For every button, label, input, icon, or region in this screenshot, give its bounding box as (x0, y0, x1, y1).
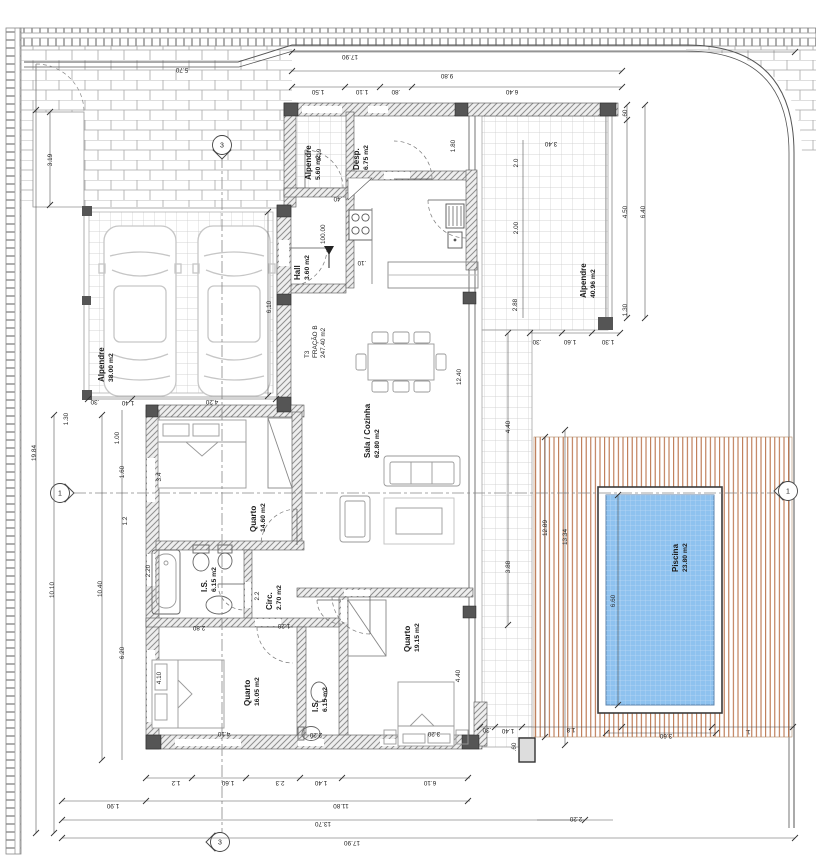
dimension-label: 1.8 (566, 726, 575, 733)
wardrobe (348, 600, 386, 656)
post (82, 206, 92, 216)
dimension-label: 1. (745, 728, 751, 735)
svg-text:I.S.: I.S. (200, 580, 209, 592)
svg-text:Piscina: Piscina (671, 543, 680, 572)
dimension-label: 4.10 (156, 671, 163, 684)
dimension-label: 17.90 (344, 839, 360, 846)
svg-text:40.96 m2: 40.96 m2 (590, 269, 597, 298)
car-icon (193, 226, 275, 396)
svg-text:14.60 m2: 14.60 m2 (260, 503, 267, 532)
pool-deck (519, 437, 792, 762)
floor-plan-svg: 1133 17.909.801.501.10.806.405.703.19.60… (0, 0, 816, 856)
dimension-label: 1.30 (601, 338, 614, 345)
shelf-triangle (348, 178, 372, 200)
svg-text:3: 3 (220, 143, 224, 150)
deck-equipment-box (519, 738, 535, 762)
dimension-label: .60 (511, 742, 518, 751)
svg-text:Sala / Cozinha: Sala / Cozinha (363, 403, 372, 458)
dimension-label: 1.40 (121, 399, 134, 406)
floor-plan-document: 1133 17.909.801.501.10.806.405.703.19.60… (0, 0, 816, 856)
dimension-label: 4.40 (455, 669, 462, 682)
side-path-tiles (482, 330, 532, 747)
svg-text:1: 1 (58, 491, 62, 498)
svg-text:247.40 m2: 247.40 m2 (320, 327, 327, 358)
terrace-post (598, 317, 613, 330)
svg-text:6.15 m2: 6.15 m2 (322, 687, 329, 712)
svg-text:5.60 m2: 5.60 m2 (315, 155, 322, 180)
room-label: Quarto14.60 m2 (249, 503, 267, 532)
dimension-label: 3.20 (427, 730, 440, 737)
dimension-label: 1.10 (355, 88, 368, 95)
coffee-table (396, 508, 442, 534)
room-label: Desp.6.75 m2 (352, 145, 370, 170)
dimension-label: 4.10 (217, 730, 230, 737)
dimension-label: .10 (357, 259, 366, 266)
dimension-label: 13.70 (315, 820, 331, 827)
room-label: Quarto19.15 m2 (403, 623, 421, 652)
svg-text:16.05 m2: 16.05 m2 (254, 677, 261, 706)
dimension-label: 3.4 (156, 472, 163, 481)
dimension-label: 6.40 (505, 88, 518, 95)
dimension-label: 1.60 (563, 338, 576, 345)
svg-text:23.80 m2: 23.80 m2 (682, 543, 689, 572)
dimension-label: 2.2 (254, 591, 261, 600)
post (82, 296, 91, 305)
dimension-label: 1.2 (171, 779, 180, 786)
svg-text:FRAÇÃO B: FRAÇÃO B (310, 325, 319, 358)
svg-text:Hall: Hall (293, 265, 302, 280)
bed (152, 660, 224, 728)
dimension-label: 2.0 (513, 158, 520, 167)
room-label: Quarto16.05 m2 (243, 677, 261, 706)
svg-text:1: 1 (786, 489, 790, 496)
rug (384, 498, 454, 544)
dimension-label: 5.70 (175, 66, 188, 73)
dimension-label: .30 (90, 398, 99, 405)
fraction-label: T3FRAÇÃO B247.40 m2 (304, 325, 327, 358)
armchair (340, 496, 370, 542)
dimension-label: 17.90 (342, 53, 358, 60)
dimension-label: 1.40 (501, 727, 514, 734)
dimension-label: 1.30 (622, 303, 629, 316)
dimension-label: 3.40 (544, 140, 557, 147)
dimension-label: .30 (482, 726, 491, 733)
svg-text:19.15 m2: 19.15 m2 (414, 623, 421, 652)
kerb-strip-left (6, 28, 21, 854)
level-marker: 100.00 (320, 224, 334, 268)
room-label: Hall3.60 m2 (293, 255, 311, 280)
svg-text:I.S.: I.S. (311, 700, 320, 712)
dimension-label: 2.80 (192, 624, 205, 631)
svg-text:Circ.: Circ. (265, 592, 274, 610)
svg-text:3.60 m2: 3.60 m2 (304, 255, 311, 280)
dimension-label: 6.10 (266, 300, 273, 313)
post (82, 390, 92, 400)
dimension-label: 4.40 (505, 420, 512, 433)
dimension-label: 4.20 (205, 398, 218, 405)
room-label: Circ.2.70 m2 (265, 585, 283, 610)
dimension-label: 1.30 (63, 412, 70, 425)
svg-text:38.00 m2: 38.00 m2 (108, 353, 115, 382)
sofa (384, 456, 460, 486)
dimension-label: 9.80 (440, 72, 453, 79)
dimension-label: 2.3 (275, 779, 284, 786)
dimension-label: 1.50 (311, 88, 324, 95)
dimension-label: .30 (532, 338, 541, 345)
dimension-label: 1.80 (450, 139, 457, 152)
svg-text:6.75 m2: 6.75 m2 (363, 145, 370, 170)
svg-text:2.70 m2: 2.70 m2 (276, 585, 283, 610)
dimension-label: 6.60 (610, 594, 617, 607)
svg-text:Alpendre: Alpendre (304, 145, 313, 180)
svg-text:Quarto: Quarto (243, 680, 252, 706)
svg-text:Alpendre: Alpendre (97, 347, 106, 382)
wardrobe (268, 418, 292, 488)
svg-text:Quarto: Quarto (249, 506, 258, 532)
dimension-label: 2.00 (513, 221, 520, 234)
dimension-label: .80 (391, 88, 400, 95)
dimension-label: 6.20 (119, 646, 126, 659)
dimension-label: 11.80 (333, 802, 349, 809)
dimension-label: 13.34 (562, 529, 569, 545)
dimension-label: 1.60 (119, 465, 126, 478)
dimension-label: 3.19 (47, 153, 54, 166)
dimension-label: 2.88 (512, 298, 519, 311)
dimension-label: 1.60 (221, 779, 234, 786)
svg-text:Alpendre: Alpendre (579, 263, 588, 298)
paved-corner (686, 46, 816, 154)
dimension-label: 19.84 (31, 445, 38, 461)
svg-text:3: 3 (218, 840, 222, 847)
section-marker: 3 (206, 833, 230, 852)
dimension-label: 2.20 (569, 815, 582, 822)
svg-text:62.80 m2: 62.80 m2 (374, 429, 381, 458)
kitchen-stove-icon (349, 210, 372, 240)
dimension-label: 2.20 (309, 731, 322, 738)
entrance-walkway (33, 112, 84, 207)
dimension-label: 12.40 (456, 369, 463, 385)
dimension-label: 12.89 (542, 520, 549, 536)
dimension-label: 10.10 (49, 582, 56, 598)
dimension-label: 1.2 (122, 516, 129, 525)
dimension-label: 3.60 (659, 732, 672, 739)
bed (158, 420, 246, 488)
dimension-label: 1.20 (277, 622, 290, 629)
dimension-label: 6.40 (640, 205, 647, 218)
dimension-label: 2.20 (145, 564, 152, 577)
svg-text:6.15 m2: 6.15 m2 (211, 567, 218, 592)
room-label: Sala / Cozinha62.80 m2 (363, 403, 381, 458)
svg-text:Desp.: Desp. (352, 148, 361, 170)
dimension-label: 6.10 (423, 779, 436, 786)
dimension-label: 1.90 (106, 802, 119, 809)
kerb-strip-top (20, 28, 816, 46)
dimension-label: 3.88 (505, 560, 512, 573)
dimension-label: .40 (333, 195, 342, 202)
dimension-label: 1.40 (314, 779, 327, 786)
dining-table (356, 332, 446, 392)
dimension-label: 4.50 (622, 205, 629, 218)
svg-text:100.00: 100.00 (320, 224, 327, 244)
svg-text:T3: T3 (304, 350, 311, 358)
svg-text:Quarto: Quarto (403, 626, 412, 652)
dimension-label: 1.00 (114, 431, 121, 444)
dimension-label: .60 (622, 109, 629, 118)
dimension-label: 10.40 (97, 581, 104, 597)
